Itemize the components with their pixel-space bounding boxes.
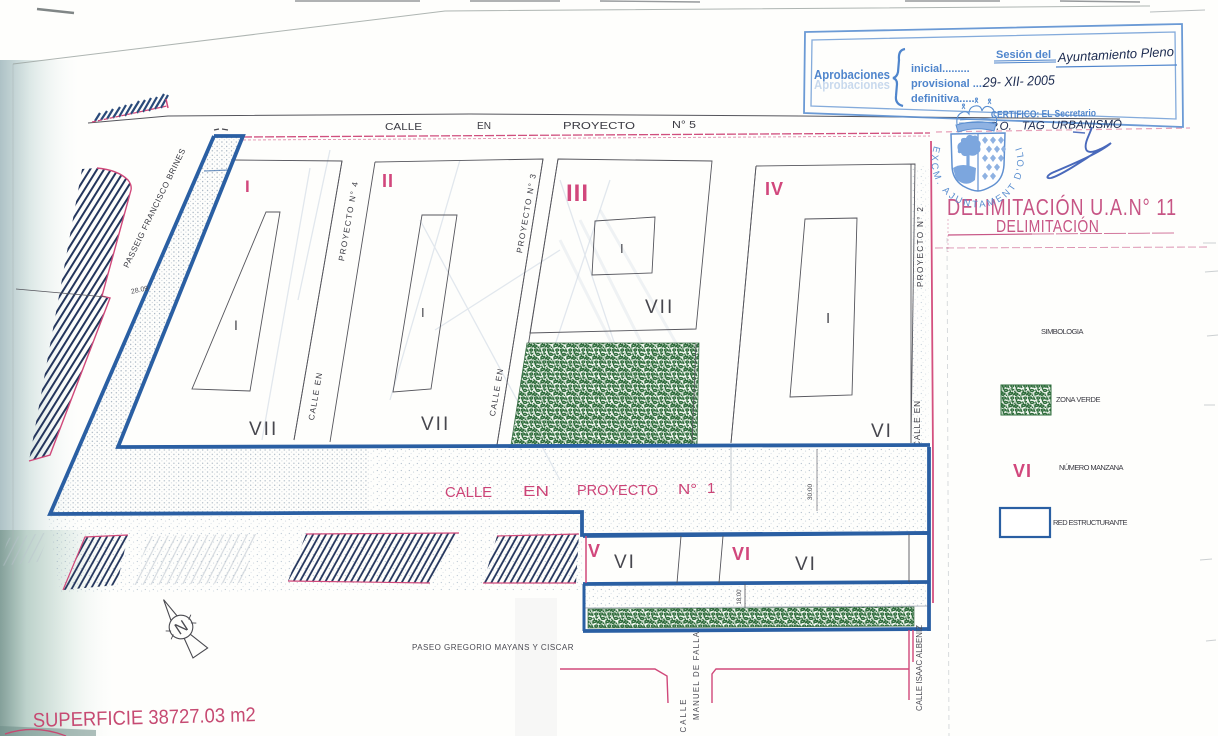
- svg-text:VII: VII: [645, 297, 674, 318]
- svg-text:N°: N°: [678, 481, 697, 498]
- svg-text:VI: VI: [732, 544, 751, 564]
- svg-text:CALLE: CALLE: [445, 484, 492, 501]
- svg-text:IV: IV: [765, 179, 784, 199]
- svg-text:I: I: [421, 305, 425, 320]
- svg-text:N° 5: N° 5: [672, 120, 697, 131]
- svg-text:CALLE ISAAC ALBENIZ: CALLE ISAAC ALBENIZ: [915, 625, 924, 711]
- svg-text:VI: VI: [871, 421, 893, 442]
- svg-text:CALLE: CALLE: [679, 700, 688, 733]
- svg-text:P.O. TAG URBANISMO: P.O. TAG URBANISMO: [990, 119, 1122, 133]
- svg-text:I: I: [234, 317, 238, 333]
- svg-text:30.00: 30.00: [807, 483, 814, 500]
- svg-text:EN: EN: [523, 483, 549, 500]
- svg-text:1: 1: [707, 480, 715, 497]
- svg-text:VI: VI: [614, 552, 636, 573]
- svg-text:SIMBOLOGIA: SIMBOLOGIA: [1041, 327, 1084, 336]
- svg-text:VI: VI: [795, 554, 817, 575]
- svg-text:VI: VI: [1013, 461, 1032, 481]
- svg-text:I: I: [620, 241, 624, 256]
- svg-text:definitiva......: definitiva......: [911, 93, 978, 105]
- svg-text:I: I: [826, 310, 830, 327]
- svg-text:III: III: [566, 180, 589, 207]
- svg-text:CALLE: CALLE: [385, 122, 422, 133]
- svg-text:RED ESTRUCTURANTE: RED ESTRUCTURANTE: [1053, 518, 1128, 527]
- svg-text:NÚMERO MANZANA: NÚMERO MANZANA: [1059, 463, 1124, 472]
- svg-text:PROYECTO N° 2: PROYECTO N° 2: [916, 207, 925, 287]
- svg-text:29- XII- 2005: 29- XII- 2005: [982, 72, 1056, 90]
- svg-text:PASEO GREGORIO MAYANS Y CI: PASEO GREGORIO MAYANS Y CISCAR: [412, 643, 574, 652]
- svg-text:I: I: [245, 177, 250, 196]
- svg-text:inicial.........: inicial.........: [911, 63, 970, 75]
- svg-text:CALLE EN: CALLE EN: [913, 401, 922, 447]
- svg-text:PROYECTO: PROYECTO: [563, 121, 635, 132]
- svg-text:VII: VII: [421, 414, 450, 435]
- svg-text:VII: VII: [249, 419, 278, 440]
- svg-text:18.00: 18.00: [737, 589, 743, 605]
- svg-text:II: II: [382, 171, 394, 191]
- svg-text:MANUEL DE FALLA: MANUEL DE FALLA: [692, 631, 701, 720]
- svg-text:Aprobaciones: Aprobaciones: [814, 78, 890, 92]
- svg-text:ZONA VERDE: ZONA VERDE: [1056, 395, 1101, 404]
- svg-text:Sesión del: Sesión del: [996, 49, 1051, 61]
- svg-text:EN: EN: [477, 121, 491, 132]
- svg-text:V: V: [588, 541, 600, 561]
- svg-text:provisional ....: provisional ....: [911, 78, 985, 90]
- svg-text:PROYECTO: PROYECTO: [577, 482, 658, 499]
